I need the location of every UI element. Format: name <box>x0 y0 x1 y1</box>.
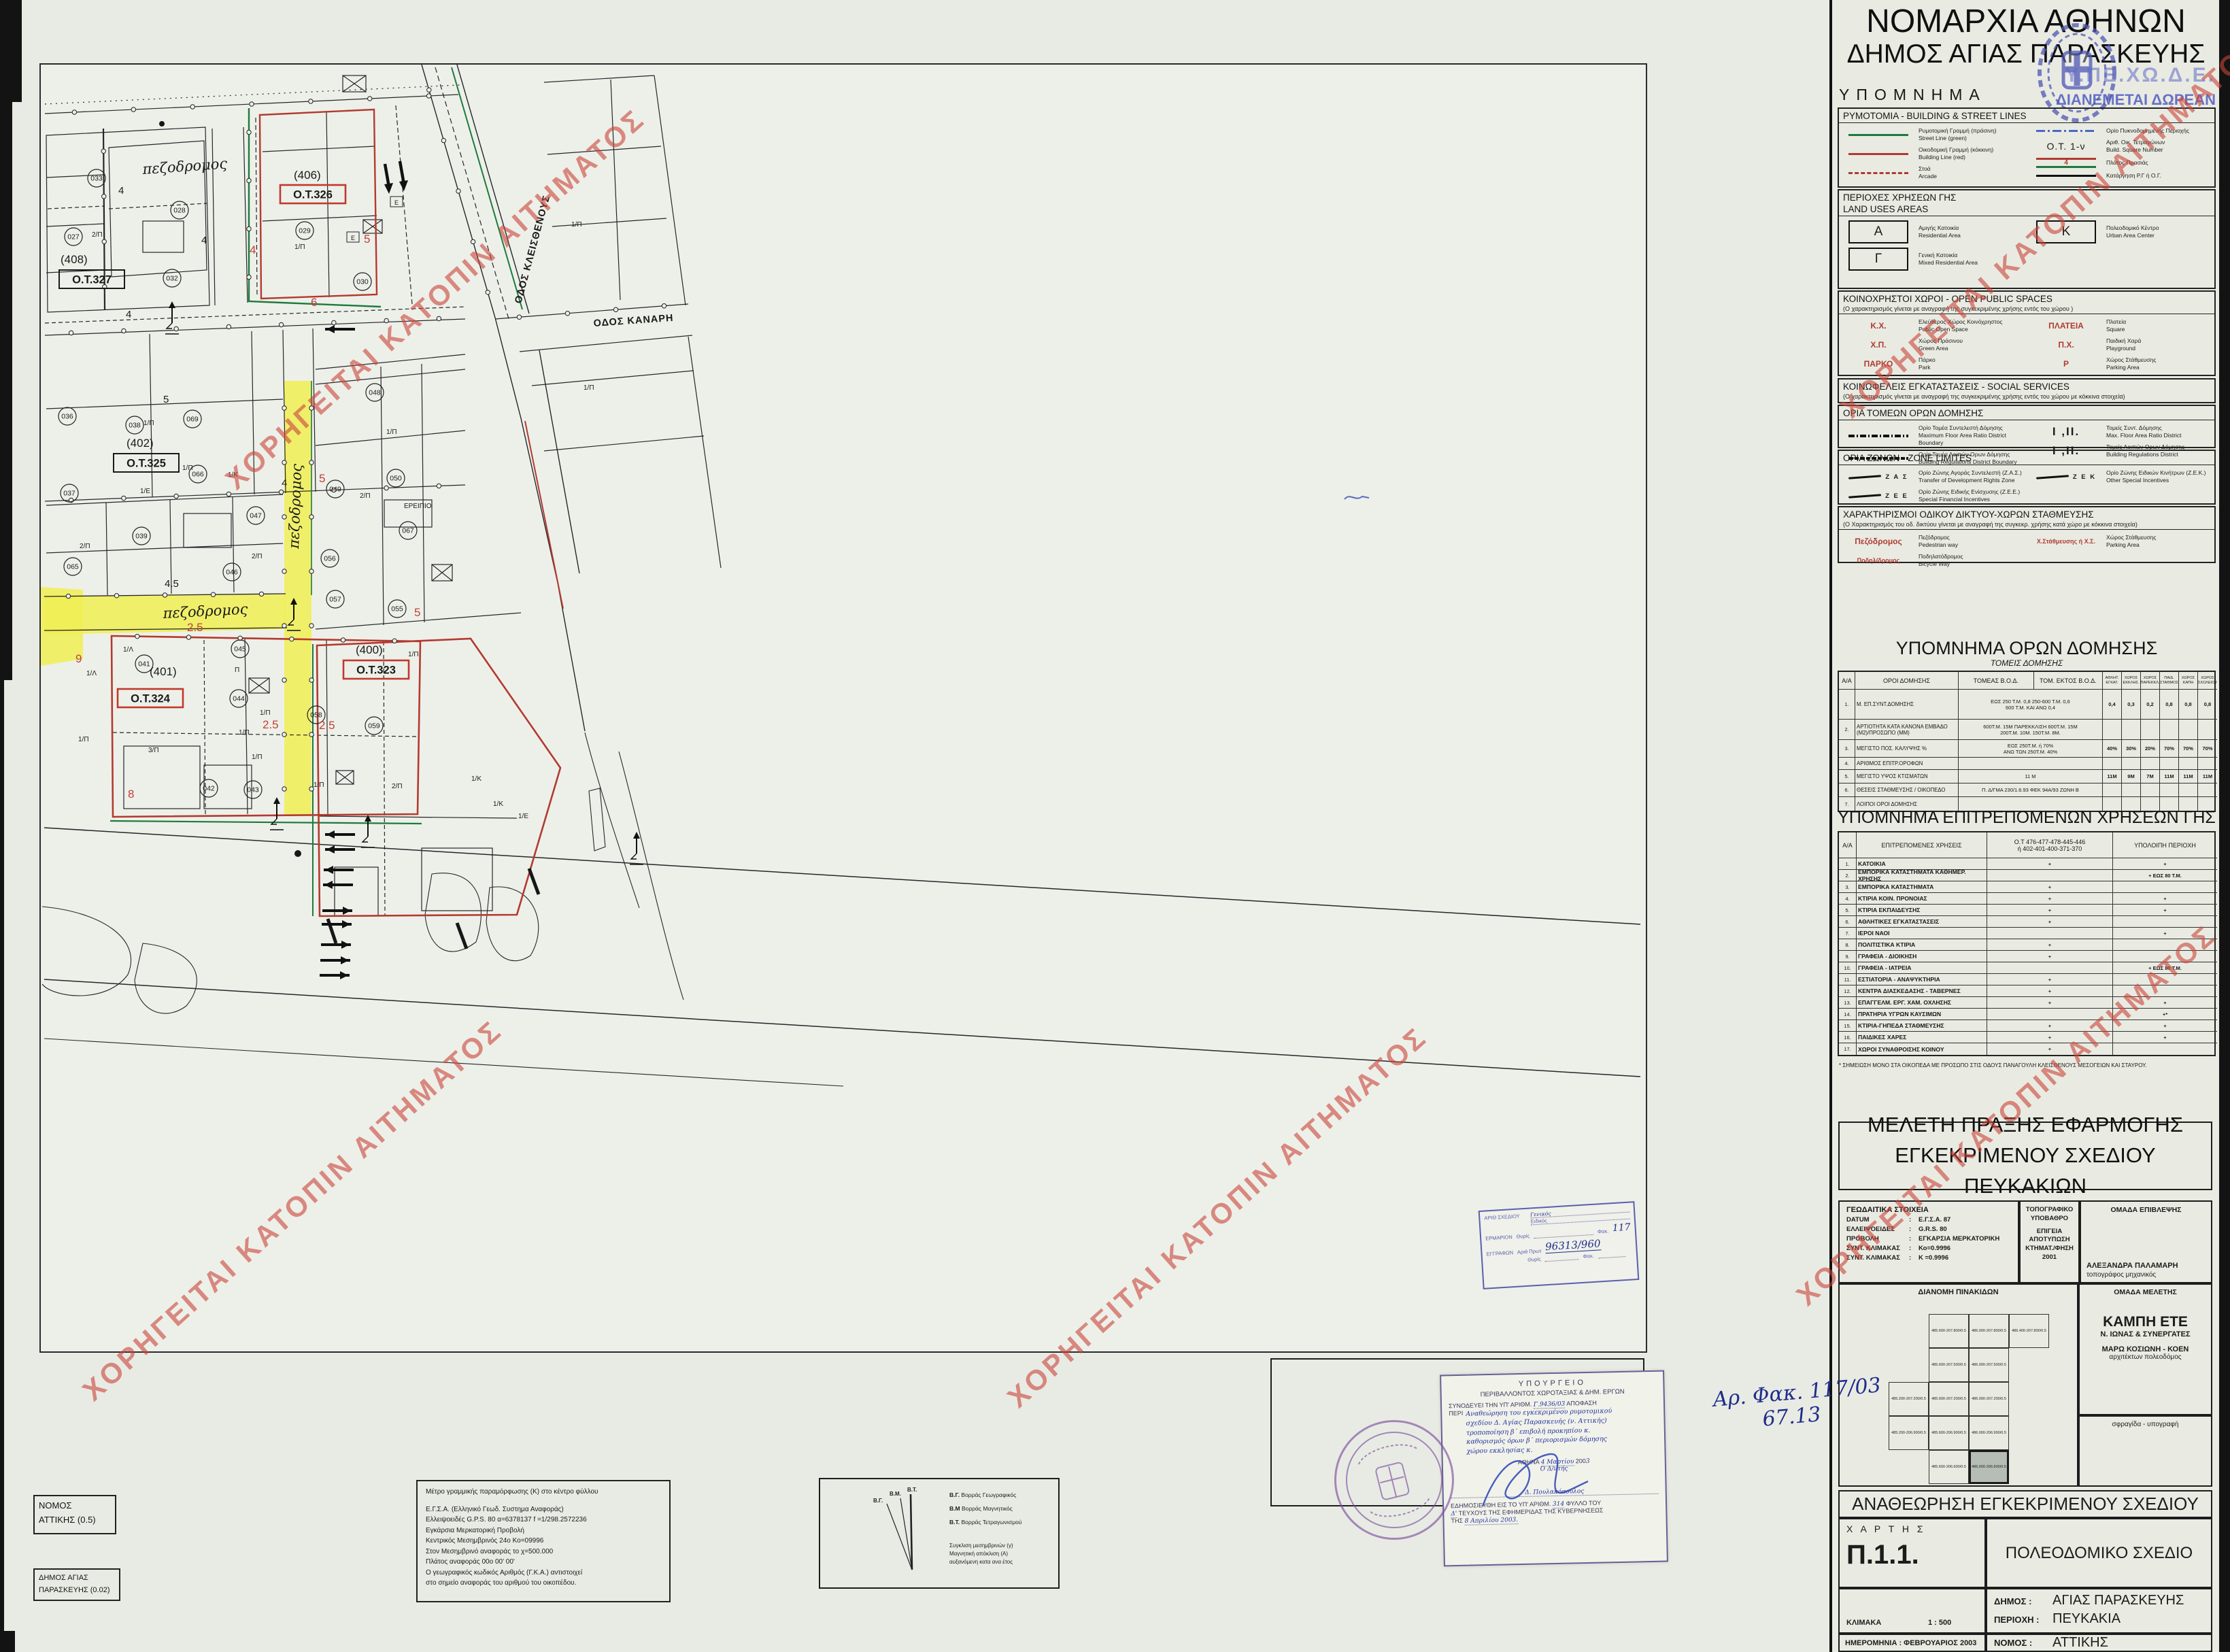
legend-item-gr: Χώρος Στάθμευσης <box>2106 356 2156 364</box>
legend-item-label: Ορίο Ζώνης Ειδικών Κινήτρων (Ζ.Ε.Κ.)Othe… <box>2106 469 2206 484</box>
terms-cell <box>2179 720 2198 740</box>
block-paren-label: (400) <box>356 643 383 656</box>
traffic-arrow <box>325 325 355 333</box>
legend-col0: ΠεζόδρομοςΠεζόδρομοςPedestrian wayΠοδηλ/… <box>1839 530 2027 572</box>
uses-cell: ΚΤΙΡΙΑ ΚΟΙΝ. ΠΡΟΝΟΙΑΣ <box>1857 893 1987 905</box>
legend-col0: Ζ Α ΣΟρίο Ζώνης Αγοράς Συντελεστή (Ζ.Α.Σ… <box>1839 465 2027 507</box>
uses-cell <box>1987 870 2113 881</box>
legend-swatch-dash <box>1848 172 1908 174</box>
setback-number-red: 2.5 <box>187 621 203 634</box>
survey-node <box>102 239 106 243</box>
legend-item-en: Special Financial Incentives <box>1919 496 2020 503</box>
sheet-tile: 486.000-207.800/0.5 <box>1969 1314 2009 1348</box>
seal-box: σφραγίδα - υπογραφή <box>2078 1415 2212 1487</box>
width-number: 4 <box>118 185 124 197</box>
block-paren-label: (408) <box>61 253 88 266</box>
survey-node <box>279 322 283 326</box>
parcel-use-label: 1/Π <box>78 736 89 743</box>
street-name-label: ΟΔΟΣ ΚΑΝΑΡΗ <box>593 313 674 329</box>
legend-section-title: ΧΑΡΑΚΤΗΡΙΣΜΟΙ ΟΔΙΚΟΥ ΔΙΚΤΥΟΥ-ΧΩΡΩΝ ΣΤΑΘΜ… <box>1839 507 2214 521</box>
north-fan-diagram: Β.Γ. Β.Μ. Β.Τ. <box>847 1485 949 1587</box>
terms-cell <box>2198 758 2217 770</box>
legend-item-gr: Πεζόδρομος <box>1919 534 1958 541</box>
block-paren-label: (406) <box>294 169 321 182</box>
legend-item-label: ΠλατείαSquare <box>2106 318 2126 333</box>
prasia-number: 4 <box>2036 161 2096 165</box>
parcel-use-label: 1/Π <box>252 754 263 761</box>
legend-item-en: Transfer of Development Rights Zone <box>1919 477 2022 484</box>
sheet-index-grid: 485.600-207.800/0.5486.000-207.800/0.548… <box>1889 1314 2049 1484</box>
uses-cell: ΠΟΛΙΤΙΣΤΙΚΑ ΚΤΙΡΙΑ <box>1857 939 1987 951</box>
terms-cell: 0,8 <box>2160 690 2179 720</box>
uses-cell: + <box>1987 997 2113 1009</box>
study-title-box: ΜΕΛΕΤΗ ΠΡΑΞΗΣ ΕΦΑΡΜΟΓΗΣ ΕΓΚΕΚΡΙΜΕΝΟΥ ΣΧΕ… <box>1838 1122 2212 1190</box>
parcel-use-label: 1/Λ <box>86 670 97 677</box>
terms-cell: 11Μ <box>2160 770 2179 783</box>
north-fan-label-bm: Β.Μ. <box>890 1491 901 1497</box>
survey-node <box>282 569 286 573</box>
parcel-number: 033 <box>90 175 103 183</box>
uses-cell: + <box>1987 951 2113 962</box>
parcel-number: 058 <box>310 711 322 720</box>
uses-cell: + <box>1987 858 2113 870</box>
date-box: ΗΜΕΡΟΜΗΝΙΑ : ΦΕΒΡΟΥΑΡΙΟΣ 2003 <box>1838 1634 1986 1652</box>
legend-item-label: Χώρος ΣτάθμευσηςParking Area <box>2106 356 2156 371</box>
survey-node <box>247 275 251 279</box>
terms-cell: 0,2 <box>2141 690 2160 720</box>
uses-cell <box>2113 1043 2217 1055</box>
legend-item-gr: Ορίο Ζώνης Ειδικής Ενίσχυσης (Ζ.Ε.Ε.) <box>1919 488 2020 496</box>
survey-node <box>309 732 314 737</box>
legend-col1: Ζ Ε ΚΟρίο Ζώνης Ειδικών Κινήτρων (Ζ.Ε.Κ.… <box>2027 465 2214 507</box>
dimos-corner-line1: ΔΗΜΟΣ ΑΓΙΑΣ <box>39 1572 115 1585</box>
geodetic-value: ΕΓΚΑΡΣΙΑ ΜΕΡΚΑΤΟΡΙΚΗ <box>1919 1235 1999 1243</box>
e-box-label: Ε <box>351 235 355 241</box>
sheet-tile: 486.400-207.800/0.5 <box>2009 1314 2049 1348</box>
archive-field-folder: Φακ. <box>1598 1228 1609 1235</box>
legend-item: ΠεζόδρομοςΠεζόδρομοςPedestrian way <box>1844 534 2024 549</box>
legend-item-label: Πολεοδομικό ΚέντροUrban Area Center <box>2106 224 2159 239</box>
survey-node <box>427 88 431 92</box>
legend-item: Ι ,ΙΙ.Τομείς Συντ. ΔόμησηςMax. Floor Are… <box>2032 424 2212 439</box>
uses-cell: + <box>2113 893 2217 905</box>
zone-swatch: Ζ Ε Ε <box>1848 492 1908 500</box>
parcel-number: 042 <box>203 785 215 793</box>
legend-section-title: ΟΡΙΑ ΖΩΝΩΝ - ZONE LIMITES <box>1839 451 2214 465</box>
legend-section-note: (Ο Χαρακτηρισμός του οδ. δικτύου γίνεται… <box>1839 521 2214 529</box>
survey-node <box>290 637 294 641</box>
legend-item-label: Ορίο Τομέα Συντελεστή ΔόμησηςMaximum Flo… <box>1919 424 2024 447</box>
legend-item-label: ΠεζόδρομοςPedestrian way <box>1919 534 1958 549</box>
survey-node <box>486 290 490 294</box>
legend-section-title: ΚΟΙΝΟΧΡΗΣΤΟΙ ΧΩΡΟΙ - OPEN PUBLIC SPACES <box>1839 292 2214 305</box>
terms-cell <box>2160 783 2179 797</box>
survey-node <box>332 320 336 324</box>
parcel-use-label: 2/Π <box>80 543 90 550</box>
parcel-use-label: 1/Π <box>571 221 582 229</box>
survey-node <box>309 624 314 628</box>
terms-cell <box>2103 720 2122 740</box>
peri-label: ΠΕΡΙ <box>1449 1410 1464 1457</box>
uses-cell: + <box>2113 858 2217 870</box>
terms-cell: 0,3 <box>2122 690 2141 720</box>
parcel-use-label: 1/Π <box>584 384 594 392</box>
legend-item-en: Square <box>2106 326 2126 333</box>
legend-swatch-line <box>1848 153 1908 155</box>
legend-item-gr: Στοά <box>1919 165 1937 173</box>
legend-col1: Χ.Στάθμευσης ή Χ.Σ.Χώρος ΣτάθμευσηςParki… <box>2027 530 2214 572</box>
uses-cell: Α/Α <box>1839 832 1857 858</box>
archive-field-docs: ΕΓΓΡΑΦΩΝ <box>1486 1249 1513 1257</box>
survey-node <box>122 496 126 500</box>
parcel-number: 066 <box>192 471 204 479</box>
sheet-tile: 485.600-207.200/0.5 <box>1929 1382 1969 1416</box>
terms-cell: ΕΩΣ 250 Τ.Μ. 0,8 250-600 Τ.Μ. 0,6600 Τ.Μ… <box>1959 690 2103 720</box>
width-number: 4 <box>282 477 287 489</box>
uses-cell: ΕΜΠΟΡΙΚΑ ΚΑΤΑΣΤΗΜΑΤΑ <box>1857 881 1987 893</box>
legend-col1: ΠΛΑΤΕΙΑΠλατείαSquareΠ.Χ.Παιδική ΧαράPlay… <box>2027 314 2214 375</box>
red-use-symbol: ΠΛΑΤΕΙΑ <box>2048 321 2084 331</box>
legend-columns: Ζ Α ΣΟρίο Ζώνης Αγοράς Συντελεστή (Ζ.Α.Σ… <box>1839 465 2214 507</box>
terms-cell: ΧΩΡΟΣ ΠΑΡΕΚΚΛ. <box>2141 672 2160 690</box>
legend-item-en: Arcade <box>1919 173 1937 180</box>
scale-value: 1 : 500 <box>1928 1619 1951 1627</box>
terms-cell: ΜΕΓΙΣΤΟ ΥΨΟΣ ΚΤΙΣΜΑΤΩΝ <box>1855 770 1959 783</box>
legend-item-en: Maximum Floor Area Ratio District Bounda… <box>1919 432 2024 447</box>
terms-cell <box>2198 783 2217 797</box>
parcel-number: 041 <box>138 660 150 669</box>
legend-swatch-boundary1 <box>1848 435 1908 437</box>
sheet-tile: 485.200-207.200/0.5 <box>1889 1382 1929 1416</box>
survey-node <box>66 594 70 598</box>
parcel-use-label: 2/Π <box>360 492 371 500</box>
uses-cell: + <box>2113 1032 2217 1043</box>
uses-cell: ΠΡΑΤΗΡΙΑ ΥΓΡΩΝ ΚΑΥΣΙΜΩΝ <box>1857 1009 1987 1020</box>
parcel-number: 069 <box>186 416 199 424</box>
setback-number-red: 5 <box>364 233 370 246</box>
terms-cell: 30% <box>2122 740 2141 758</box>
dimos-value: ΑΓΙΑΣ ΠΑΡΑΣΚΕΥΗΣ <box>2052 1593 2184 1608</box>
sheet-tile: 485.600-206.600/0.5 <box>1929 1450 1969 1484</box>
terms-cell <box>1959 758 2103 770</box>
legend-item-label: Αμιγής ΚατοικίαResidential Area <box>1919 224 1961 239</box>
nomos-box: ΝΟΜΟΣ : ΑΤΤΙΚΗΣ <box>1986 1634 2212 1652</box>
geodetic-colon: : <box>1909 1235 1919 1243</box>
plan-type-box: ΠΟΛΕΟΔΟΜΙΚΟ ΣΧΕΔΙΟ <box>1986 1518 2212 1588</box>
terms-cell: 4. <box>1839 758 1855 770</box>
uses-cell: ΚΤΙΡΙΑ-ΓΗΠΕΔΑ ΣΤΑΘΜΕΥΣΗΣ <box>1857 1020 1987 1032</box>
parcel-number: 056 <box>324 555 336 563</box>
terms-cell: 70% <box>2198 740 2217 758</box>
zone-swatch: Ζ Α Σ <box>1848 473 1908 481</box>
scale-box: ΚΛΙΜΑΚΑ 1 : 500 <box>1838 1588 1986 1634</box>
survey-node <box>186 635 190 639</box>
legend-item-gr: Ορίο Ζώνης Αγοράς Συντελεστή (Ζ.Α.Σ.) <box>1919 469 2022 477</box>
setback-number-red: 2.5 <box>263 718 279 731</box>
parcel-number: 049 <box>329 486 341 494</box>
terms-cell: 40% <box>2103 740 2122 758</box>
lane-arrow <box>399 161 408 191</box>
terms-cell: 70% <box>2179 740 2198 758</box>
terms-cell: Μ. ΕΠ.ΣΥΝΤ.ΔΟΜΗΣΗΣ <box>1855 690 1959 720</box>
legend-item: Ορίο Τομέα Συντελεστή ΔόμησηςMaximum Flo… <box>1844 424 2024 447</box>
parcel-use-label: 1/Π <box>182 465 193 472</box>
uses-table-footnote: * ΣΗΜΕΙΩΣΗ ΜΟΝΟ ΣΤΑ ΟΙΚΟΠΕΔΑ ΜΕ ΠΡΟΣΩΠΟ … <box>1839 1062 2216 1068</box>
parcel-number: 059 <box>368 722 380 730</box>
dimos-label: ΔΗΜΟΣ : <box>1994 1596 2043 1606</box>
uses-cell: ΙΕΡΟΙ ΝΑΟΙ <box>1857 928 1987 939</box>
uses-cell: ΚΤΙΡΙΑ ΕΚΠΑΙΔΕΥΣΗΣ <box>1857 905 1987 916</box>
width-number: 4 <box>126 309 131 320</box>
terms-cell: ΜΕΓΙΣΤΟ ΠΟΣ. ΚΑΛΥΨΗΣ % <box>1855 740 1959 758</box>
survey-node <box>392 639 396 643</box>
setback-number-red: 9 <box>75 652 82 665</box>
legend-item-gr: Αμιγής Κατοικία <box>1919 224 1961 232</box>
terms-cell: 11Μ <box>2179 770 2198 783</box>
uses-cell: ΑΘΛΗΤΙΚΕΣ ΕΓΚΑΤΑΣΤΑΣΕΙΣ <box>1857 916 1987 928</box>
traffic-arrow <box>320 956 350 964</box>
terms-cell <box>2160 720 2179 740</box>
geodetic-value: Ε.Γ.Σ.Α. 87 <box>1919 1216 1950 1224</box>
survey-node <box>565 311 569 316</box>
north-mark <box>630 832 643 864</box>
sheet-tile: 486.000-207.500/0.5 <box>1969 1348 2009 1382</box>
north-mark <box>361 815 375 847</box>
setback-number-red: 4 <box>250 243 256 256</box>
nomos-corner-line2: ΑΤΤΙΚΗΣ (0.5) <box>39 1513 111 1528</box>
scale-label: ΚΛΙΜΑΚΑ <box>1846 1619 1881 1627</box>
legend-item: Ρυμοτομική Γραμμή (πράσινη)Street Line (… <box>1844 127 2024 142</box>
uses-cell: + <box>1987 916 2113 928</box>
pedestrian-street-label: πεζοδρομος <box>286 463 305 550</box>
parcel-lines <box>42 65 1640 1086</box>
legend-item: Χ.Στάθμευσης ή Χ.Σ.Χώρος ΣτάθμευσηςParki… <box>2032 534 2212 549</box>
setback-number-red: 8 <box>128 788 134 800</box>
red-use-symbol: Χ.Π. <box>1870 340 1886 350</box>
uses-cell: + <box>1987 985 2113 997</box>
terms-cell <box>2103 758 2122 770</box>
revision-text: ΑΝΑΘΕΩΡΗΣΗ ΕΓΚΕΚΡΙΜΕΝΟΥ ΣΧΕΔΙΟΥ <box>1852 1494 2199 1515</box>
parcel-number: 067 <box>402 527 414 535</box>
survey-node <box>174 326 178 331</box>
legend-col0: Ρυμοτομική Γραμμή (πράσινη)Street Line (… <box>1839 123 2027 184</box>
uses-table-title: ΥΠΟΜΝΗΜΑ ΕΠΙΤΡΕΠΟΜΕΝΩΝ ΧΡΗΣΕΩΝ ΓΗΣ <box>1838 808 2216 828</box>
width-number: 4.5 <box>165 578 179 590</box>
uses-cell <box>2113 881 2217 893</box>
uses-cell: ΠΑΙΔΙΚΕΣ ΧΑΡΕΣ <box>1857 1032 1987 1043</box>
uses-cell <box>1987 928 2113 939</box>
terms-table-title: ΥΠΟΜΝΗΜΑ ΟΡΩΝ ΔΟΜΗΣΗΣ <box>1838 638 2216 659</box>
survey-node <box>69 331 73 335</box>
terms-cell <box>2198 720 2217 740</box>
archive-stamp: ΑΡΙΘ ΣΧΕΔΙΟΥ Γενικός Ειδικός ΕΡΜΑΡΙΟΝ Θυ… <box>1479 1201 1640 1289</box>
uses-cell: 10. <box>1839 962 1857 974</box>
survey-node <box>309 678 314 682</box>
terms-table-subtitle: ΤΟΜΕΙΣ ΔΟΜΗΣΗΣ <box>1838 658 2216 668</box>
uses-cell <box>1987 962 2113 974</box>
scan-edge-left-low <box>0 680 4 1652</box>
uses-cell: + <box>1987 974 2113 985</box>
supervisor-name: ΑΛΕΞΑΝΔΡΑ ΠΑΛΑΜΑΡΗ <box>2087 1262 2178 1270</box>
geodetic-value: Κο=0.9996 <box>1919 1245 1950 1252</box>
zone-line <box>2036 475 2069 479</box>
terms-cell <box>2141 758 2160 770</box>
survey-node <box>613 307 618 311</box>
uses-cell: ΚΕΝΤΡΑ ΔΙΑΣΚΕΔΑΣΗΣ - ΤΑΒΕΡΝΕΣ <box>1857 985 1987 997</box>
legend-section-title: ΠΕΡΙΟΧΕΣ ΧΡΗΣΕΩΝ ΓΗΣ <box>1839 190 2214 204</box>
terms-cell: 600Τ.Μ. 15Μ ΠΑΡΕΚΚΛΙΣΗ 600Τ.Μ. 15Μ200Τ.Μ… <box>1959 720 2103 740</box>
parcel-use-label: 2/Π <box>92 231 103 239</box>
legend-item-gr: Ρυμοτομική Γραμμή (πράσινη) <box>1919 127 1997 135</box>
setback-number-red: 5 <box>319 472 325 485</box>
pedestrian-street-label: πεζοδρομος <box>141 155 228 178</box>
parcel-use-label: 1/Λ <box>123 646 133 654</box>
uses-cell: + ΕΩΣ 80 Τ.Μ. <box>2113 870 2217 881</box>
legend-swatch-line <box>1848 134 1908 136</box>
parcel-number: 045 <box>234 645 246 654</box>
legend-item: ΑΑμιγής ΚατοικίαResidential Area <box>1844 220 2024 243</box>
legend-item-en: Street Line (green) <box>1919 135 1997 142</box>
scan-edge-bottom-left <box>0 1631 15 1652</box>
legend-item: Ποδηλ/δρομοςΠοδηλατόδρομοςBicycle Way <box>1844 553 2024 568</box>
legend-section-title-en: LAND USES AREAS <box>1839 204 2214 216</box>
survey-node <box>368 97 372 101</box>
parcel-use-label: Π <box>235 667 239 674</box>
survey-node <box>226 324 231 328</box>
terms-cell: 2. <box>1839 720 1855 740</box>
survey-node <box>282 460 286 465</box>
uses-cell: 5. <box>1839 905 1857 916</box>
survey-node <box>282 406 286 410</box>
north-fan-label-bg: Β.Γ. <box>873 1498 883 1504</box>
parcel-number: 048 <box>369 389 381 397</box>
uses-cell: 3. <box>1839 881 1857 893</box>
parcel-number: 057 <box>329 596 341 604</box>
nomos-corner-box: ΝΟΜΟΣ ΑΤΤΙΚΗΣ (0.5) <box>33 1495 116 1534</box>
block-ot-number: Ο.Τ.325 <box>126 458 166 470</box>
legend-item-label: Γενική ΚατοικίαMixed Residential Area <box>1919 252 1978 267</box>
block-paren-label: (401) <box>150 665 177 678</box>
parcel-number: 050 <box>390 475 402 483</box>
red-use-symbol: Ποδηλ/δρομος <box>1857 557 1900 564</box>
parcel-use-label: 1/Π <box>386 428 397 436</box>
study-team-title: ΟΜΑΔΑ ΜΕΛΕΤΗΣ <box>2080 1285 2211 1296</box>
uses-cell: 15. <box>1839 1020 1857 1032</box>
survey-node <box>517 315 521 319</box>
uses-cell: + <box>1987 905 2113 916</box>
terms-cell <box>2122 783 2141 797</box>
legend-item: Ζ Ε ΕΟρίο Ζώνης Ειδικής Ενίσχυσης (Ζ.Ε.Ε… <box>1844 488 2024 503</box>
city-plan-map: 0330280270320290300360380690480370660470… <box>41 65 1646 1351</box>
traffic-arrow <box>322 920 352 928</box>
parcel-use-label: 1/Π <box>408 651 419 658</box>
study-team-box: ΟΜΑΔΑ ΜΕΛΕΤΗΣ ΚΑΜΠΗ ΕΤΕ Ν. ΙΩΝΑΣ & ΣΥΝΕΡ… <box>2078 1283 2212 1415</box>
survey-node <box>309 460 314 465</box>
legend-item-label: Παιδική ΧαράPlayground <box>2106 337 2141 352</box>
terms-cell: 9Μ <box>2122 770 2141 783</box>
terms-cell <box>2141 720 2160 740</box>
survey-node <box>282 787 286 791</box>
uses-table: Α/ΑΕΠΙΤΡΕΠΟΜΕΝΕΣ ΧΡΗΣΕΙΣΟ.Τ 476-477-478-… <box>1838 831 2216 1056</box>
legend-columns: ΠεζόδρομοςΠεζόδρομοςPedestrian wayΠοδηλ/… <box>1839 530 2214 572</box>
sheet-tile: 485.600-207.500/0.5 <box>1929 1348 1969 1382</box>
north-notes: Συγκλιση μεσημβρινών (γ)Μαγνητική απόκλι… <box>949 1542 1013 1566</box>
uses-cell: ΚΑΤΟΙΚΙΑ <box>1857 858 1987 870</box>
date-line: ΗΜΕΡΟΜΗΝΙΑ : ΦΕΒΡΟΥΑΡΙΟΣ 2003 <box>1845 1639 1976 1647</box>
terms-cell <box>2179 783 2198 797</box>
survey-node <box>131 107 135 112</box>
parcel-use-label: ΕΡΕΙΠΙΟ <box>404 503 432 510</box>
legend-item-gr: Ορίο Ζώνης Ειδικών Κινήτρων (Ζ.Ε.Κ.) <box>2106 469 2206 477</box>
uses-cell: + <box>1987 939 2113 951</box>
geodetic-value: G.R.S. 80 <box>1919 1226 1947 1233</box>
sheet-tile: 485.600-206.900/0.5 <box>1929 1416 1969 1450</box>
survey-node <box>259 592 263 596</box>
uses-cell: 7. <box>1839 928 1857 939</box>
sheet-tile: 485.200-206.900/0.5 <box>1889 1416 1929 1450</box>
archive-folder-number-hw: 117 <box>1612 1222 1631 1234</box>
legend-item: ΡΧώρος ΣτάθμευσηςParking Area <box>2032 356 2212 371</box>
terms-cell: 0,4 <box>2103 690 2122 720</box>
archive-field-cabinet: ΕΡΜΑΡΙΟΝ <box>1485 1234 1513 1241</box>
setback-number-red: 2.5 <box>319 719 335 732</box>
terms-cell: Α/Α <box>1839 672 1855 690</box>
survey-node <box>279 490 283 494</box>
legend-item-en: Bicycle Way <box>1919 560 1963 568</box>
uses-cell: ΕΣΤΙΑΤΟΡΙΑ - ΑΝΑΨΥΚΤΗΡΙΑ <box>1857 974 1987 985</box>
legend-section-title: ΟΡΙΑ ΤΟΜΕΩΝ ΟΡΩΝ ΔΟΜΗΣΗΣ <box>1839 406 2214 420</box>
red-use-symbol: Πεζόδρομος <box>1855 537 1902 546</box>
parcel-number: 055 <box>391 605 403 613</box>
survey-node <box>190 105 195 109</box>
survey-node <box>282 732 286 737</box>
uses-cell: 17. <box>1839 1043 1857 1055</box>
topo-lines: ΤΟΠΟΓΡΑΦΙΚΟΥΠΟΒΑΘΡΟΕΠΙΓΕΙΑΑΠΟΤΥΠΩΣΗΚΤΗΜΑ… <box>2021 1202 2078 1262</box>
width-number: 5 <box>163 394 169 405</box>
legend-title: ΥΠΟΜΝΗΜΑ <box>1839 86 1987 104</box>
terms-cell: 1. <box>1839 690 1855 720</box>
uses-cell: 8. <box>1839 939 1857 951</box>
uses-cell: 13. <box>1839 997 1857 1009</box>
uses-cell: 6. <box>1839 916 1857 928</box>
legend-item-label: Τομείς Συντ. ΔόμησηςMax. Floor Area Rati… <box>2106 424 2182 439</box>
uses-cell: ΕΠΑΓΓΕΛΜ. ΕΡΓ. ΧΑΜ. ΟΧΛΗΣΗΣ <box>1857 997 1987 1009</box>
legend-item-label: Ορίο Ζώνης Αγοράς Συντελεστή (Ζ.Α.Σ.)Tra… <box>1919 469 2022 484</box>
parcel-number: 036 <box>61 413 73 421</box>
legend-item-en: Residential Area <box>1919 232 1961 239</box>
sheet-tile-current: 486.000-206.600/0.5 <box>1969 1450 2009 1484</box>
legend-item-gr: Πολεοδομικό Κέντρο <box>2106 224 2159 232</box>
uses-cell: ΥΠΟΛΟΙΠΗ ΠΕΡΙΟΧΗ <box>2113 832 2217 858</box>
north-diagram-box: Β.Γ. Β.Μ. Β.Τ. Β.Γ. Βορράς ΓεωγραφικόςΒ.… <box>819 1478 1060 1589</box>
zone-line <box>1848 494 1881 498</box>
parcel-use-label: 1/Ε <box>140 488 150 495</box>
uses-cell: ΓΡΑΦΕΙΑ - ΔΙΟΙΚΗΣΗ <box>1857 951 1987 962</box>
study-architect: ΜΑΡΩ ΚΟΣΙΩΝΗ - ΚΟΕΝ <box>2080 1345 2211 1353</box>
uses-cell: 14. <box>1839 1009 1857 1020</box>
terms-cell <box>2160 758 2179 770</box>
sheet-tile: 486.000-207.200/0.5 <box>1969 1382 2009 1416</box>
terms-table: Α/ΑΟΡΟΙ ΔΟΜΗΣΗΣΤΟΜΕΑΣ Β.Ο.Δ.ΤΟΜ. ΕΚΤΟΣ Β… <box>1838 671 2216 812</box>
map-code: Π.1.1. <box>1846 1540 1978 1570</box>
nomos-corner-line1: ΝΟΜΟΣ <box>39 1499 111 1513</box>
legend-item-gr: Τομείς Συντ. Δόμησης <box>2106 424 2182 432</box>
terms-cell: 0,8 <box>2179 690 2198 720</box>
prasia-swatch: 4 <box>2036 158 2096 168</box>
map-frame: 0330280270320290300360380690480370660470… <box>39 63 1647 1353</box>
nomos-label: ΝΟΜΟΣ : <box>1994 1638 2043 1648</box>
parcel-number: 029 <box>299 227 311 235</box>
